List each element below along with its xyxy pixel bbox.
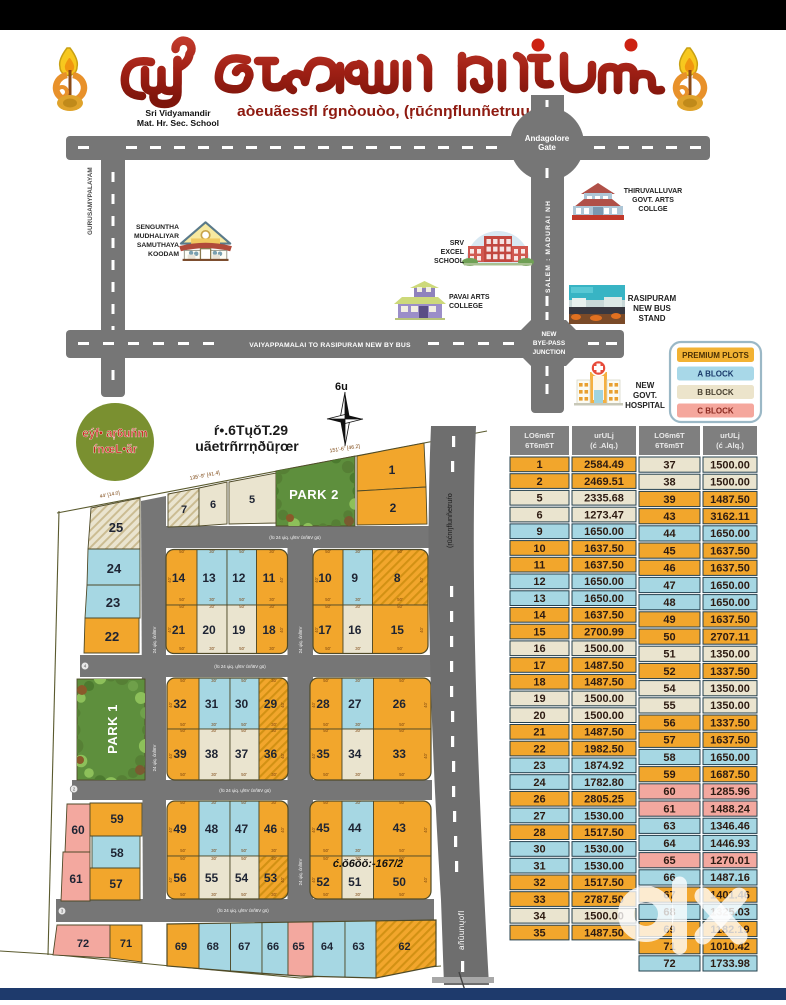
svg-text:20: 20	[202, 623, 216, 637]
svg-text:40': 40'	[280, 753, 285, 759]
svg-text:1337.50: 1337.50	[710, 666, 750, 678]
svg-text:Mat. Hr. Sec. School: Mat. Hr. Sec. School	[137, 118, 219, 128]
svg-text:A BLOCK: A BLOCK	[697, 370, 733, 379]
svg-text:1337.50: 1337.50	[710, 717, 750, 729]
svg-text:50': 50'	[399, 678, 405, 683]
svg-text:31: 31	[533, 860, 545, 872]
svg-text:1637.50: 1637.50	[584, 610, 624, 622]
svg-text:51: 51	[348, 875, 362, 889]
svg-text:40': 40'	[279, 627, 284, 633]
svg-text:63: 63	[352, 941, 364, 953]
svg-text:30': 30'	[355, 678, 361, 683]
svg-text:26: 26	[533, 794, 545, 806]
svg-text:46: 46	[264, 822, 278, 836]
svg-text:1650.00: 1650.00	[710, 597, 750, 609]
svg-text:1487.50: 1487.50	[584, 660, 624, 672]
svg-text:39: 39	[173, 747, 187, 761]
svg-text:50': 50'	[241, 892, 247, 897]
svg-text:GOVT.: GOVT.	[633, 391, 657, 400]
svg-text:40': 40'	[280, 877, 285, 883]
svg-text:50': 50'	[323, 772, 329, 777]
svg-text:30: 30	[235, 697, 249, 711]
svg-text:(ŕū 24 ųiq. ųŕ6V ćnñ6V gū): (ŕū 24 ųiq. ųŕ6V ćnñ6V gū)	[219, 788, 271, 793]
svg-text:21: 21	[172, 623, 186, 637]
svg-text:52: 52	[316, 875, 330, 889]
svg-text:40': 40'	[419, 627, 424, 633]
svg-text:29: 29	[264, 697, 278, 711]
svg-text:50': 50'	[323, 892, 329, 897]
svg-text:1273.47: 1273.47	[584, 509, 624, 521]
svg-text:50': 50'	[397, 646, 403, 651]
svg-text:EXCEL: EXCEL	[441, 249, 465, 256]
svg-text:30': 30'	[355, 604, 361, 609]
svg-text:30': 30'	[209, 604, 215, 609]
svg-text:71: 71	[120, 938, 132, 950]
svg-text:40': 40'	[311, 827, 316, 833]
svg-text:añūunųofl: añūunųofl	[457, 910, 466, 950]
svg-text:65: 65	[663, 855, 675, 867]
svg-text:LO6m6T: LO6m6T	[524, 431, 555, 440]
svg-text:1650.00: 1650.00	[710, 528, 750, 540]
svg-text:40': 40'	[314, 627, 319, 633]
svg-text:SCHOOL: SCHOOL	[434, 258, 465, 265]
svg-text:40': 40'	[423, 877, 428, 883]
svg-text:2700.99: 2700.99	[584, 626, 624, 638]
svg-text:30: 30	[533, 844, 545, 856]
svg-text:13: 13	[533, 593, 545, 605]
svg-text:52: 52	[663, 666, 675, 678]
svg-text:30': 30'	[355, 728, 361, 733]
svg-text:(ŕū 24 ųiq. ųŕ6V ćnñ6V gū): (ŕū 24 ųiq. ųŕ6V ćnñ6V gū)	[217, 908, 269, 913]
svg-text:59: 59	[110, 812, 124, 826]
svg-text:30': 30'	[355, 856, 361, 861]
svg-text:36: 36	[264, 747, 278, 761]
svg-text:50': 50'	[399, 848, 405, 853]
svg-text:MUDHALIYAR: MUDHALIYAR	[134, 233, 179, 240]
svg-text:SRV: SRV	[450, 240, 465, 247]
svg-text:50': 50'	[239, 604, 245, 609]
svg-text:57: 57	[663, 735, 675, 747]
svg-text:40': 40'	[423, 702, 428, 708]
svg-text:50': 50'	[180, 848, 186, 853]
svg-text:SAMUTHAYA: SAMUTHAYA	[137, 242, 179, 249]
svg-text:24 ųiq. ćnñ6V: 24 ųiq. ćnñ6V	[298, 627, 303, 654]
svg-text:56: 56	[663, 717, 675, 729]
svg-text:64: 64	[663, 838, 676, 850]
svg-text:40': 40'	[280, 702, 285, 708]
svg-text:56: 56	[173, 871, 187, 885]
svg-text:45: 45	[663, 545, 675, 557]
svg-text:LO6m6T: LO6m6T	[654, 431, 685, 440]
svg-text:2584.49: 2584.49	[584, 459, 624, 471]
svg-text:50: 50	[663, 631, 675, 643]
svg-text:COLLGE: COLLGE	[638, 206, 667, 213]
svg-text:1650.00: 1650.00	[710, 752, 750, 764]
svg-text:30': 30'	[271, 848, 277, 853]
svg-text:28: 28	[316, 697, 330, 711]
svg-text:50': 50'	[239, 597, 245, 602]
svg-text:2805.25: 2805.25	[584, 794, 624, 806]
svg-text:50': 50'	[241, 728, 247, 733]
svg-text:1782.80: 1782.80	[584, 777, 624, 789]
svg-text:40': 40'	[314, 577, 319, 583]
svg-text:30': 30'	[271, 856, 277, 861]
svg-text:1687.50: 1687.50	[710, 769, 750, 781]
svg-text:50': 50'	[399, 800, 405, 805]
svg-text:43: 43	[663, 511, 675, 523]
svg-text:50': 50'	[179, 646, 185, 651]
svg-text:30': 30'	[355, 646, 361, 651]
svg-text:49: 49	[663, 614, 675, 626]
svg-text:24 ųiq. ćnñ6V: 24 ųiq. ćnñ6V	[152, 627, 157, 654]
svg-text:50': 50'	[323, 728, 329, 733]
svg-text:24: 24	[533, 777, 546, 789]
svg-text:1500.00: 1500.00	[584, 693, 624, 705]
svg-text:30': 30'	[209, 549, 215, 554]
svg-text:15: 15	[533, 626, 545, 638]
svg-text:50': 50'	[397, 597, 403, 602]
svg-text:RASIPURAM: RASIPURAM	[628, 294, 677, 303]
svg-text:40': 40'	[279, 577, 284, 583]
svg-text:(ŕū 24 ųiq. ųŕ6V ćnñ6V gū): (ŕū 24 ųiq. ųŕ6V ćnñ6V gū)	[269, 535, 321, 540]
svg-text:(ŕū 24 ųiq. ųŕ6V ćnñ6V gū): (ŕū 24 ųiq. ųŕ6V ćnñ6V gū)	[214, 664, 266, 669]
svg-text:30': 30'	[211, 892, 217, 897]
svg-text:14: 14	[172, 571, 186, 585]
svg-text:30': 30'	[211, 800, 217, 805]
svg-text:11: 11	[534, 560, 546, 572]
svg-text:uãetrñrrņðūŗœr: uãetrñrrņðūŗœr	[195, 438, 299, 454]
svg-text:44: 44	[663, 528, 676, 540]
svg-text:7: 7	[181, 504, 187, 516]
svg-text:VAIYAPPAMALAI TO RASIPURAM NEW: VAIYAPPAMALAI TO RASIPURAM NEW BY BUS	[249, 342, 411, 349]
svg-text:32: 32	[533, 877, 545, 889]
svg-text:C BLOCK: C BLOCK	[697, 407, 734, 416]
svg-text:1487.50: 1487.50	[584, 677, 624, 689]
svg-text:72: 72	[77, 938, 89, 950]
svg-text:1487.50: 1487.50	[584, 727, 624, 739]
svg-text:30': 30'	[209, 597, 215, 602]
svg-text:1650.00: 1650.00	[710, 580, 750, 592]
svg-text:14: 14	[533, 610, 546, 622]
svg-text:1500.00: 1500.00	[584, 911, 624, 923]
svg-text:55: 55	[663, 700, 675, 712]
svg-text:1650.00: 1650.00	[584, 576, 624, 588]
svg-text:1530.00: 1530.00	[584, 844, 624, 856]
svg-text:54: 54	[663, 683, 676, 695]
svg-text:24: 24	[107, 561, 122, 576]
svg-text:40': 40'	[419, 577, 424, 583]
svg-text:1637.50: 1637.50	[710, 563, 750, 575]
svg-text:1350.00: 1350.00	[710, 700, 750, 712]
svg-text:50': 50'	[239, 646, 245, 651]
svg-text:50': 50'	[180, 722, 186, 727]
svg-text:50': 50'	[241, 722, 247, 727]
svg-text:1270.01: 1270.01	[710, 855, 750, 867]
svg-text:50': 50'	[325, 549, 331, 554]
svg-text:NEW BUS: NEW BUS	[633, 304, 671, 313]
svg-text:24 ųiq. ćnñ6V: 24 ųiq. ćnñ6V	[152, 745, 157, 772]
svg-text:1487.50: 1487.50	[584, 927, 624, 939]
svg-text:PAVAI ARTS: PAVAI ARTS	[449, 294, 490, 301]
svg-text:50': 50'	[397, 549, 403, 554]
svg-text:4: 4	[84, 664, 87, 669]
svg-text:58: 58	[663, 752, 675, 764]
svg-text:40': 40'	[311, 702, 316, 708]
svg-text:35: 35	[533, 927, 545, 939]
svg-text:40': 40'	[311, 753, 316, 759]
svg-text:50': 50'	[180, 772, 186, 777]
svg-text:Sri Vidyamandir: Sri Vidyamandir	[145, 108, 211, 118]
svg-text:50': 50'	[180, 800, 186, 805]
svg-text:1650.00: 1650.00	[584, 526, 624, 538]
svg-text:6T6m5T: 6T6m5T	[655, 441, 684, 450]
svg-text:39: 39	[663, 494, 675, 506]
svg-text:2: 2	[536, 476, 542, 488]
svg-text:40': 40'	[423, 827, 428, 833]
svg-text:2: 2	[390, 501, 397, 515]
svg-text:10: 10	[318, 571, 332, 585]
svg-text:33: 33	[533, 894, 545, 906]
svg-text:50': 50'	[239, 549, 245, 554]
svg-text:63: 63	[663, 821, 675, 833]
svg-text:57: 57	[109, 877, 123, 891]
svg-text:2707.11: 2707.11	[710, 631, 749, 643]
svg-text:23: 23	[533, 760, 545, 772]
svg-text:1346.46: 1346.46	[710, 821, 750, 833]
svg-text:8: 8	[394, 571, 401, 585]
svg-text:28: 28	[533, 827, 545, 839]
svg-text:1488.24: 1488.24	[710, 803, 751, 815]
svg-text:40': 40'	[168, 827, 173, 833]
svg-text:30': 30'	[211, 728, 217, 733]
svg-text:PREMIUM PLOTS: PREMIUM PLOTS	[682, 351, 749, 360]
svg-text:NEW: NEW	[636, 381, 655, 390]
svg-text:38: 38	[663, 477, 675, 489]
svg-text:6: 6	[536, 509, 542, 521]
svg-text:151'-6" [46.2]: 151'-6" [46.2]	[329, 444, 361, 455]
svg-text:135'-9" [41.4]: 135'-9" [41.4]	[189, 470, 221, 482]
svg-text:50': 50'	[241, 678, 247, 683]
svg-text:COLLEGE: COLLEGE	[449, 303, 483, 310]
svg-text:1637.50: 1637.50	[584, 543, 624, 555]
svg-text:55: 55	[205, 871, 219, 885]
svg-text:THIRUVALLUVAR: THIRUVALLUVAR	[624, 188, 682, 195]
svg-text:27: 27	[533, 810, 545, 822]
svg-text:12: 12	[232, 571, 246, 585]
svg-text:50': 50'	[325, 597, 331, 602]
svg-text:ć.ŏ6ŏŏ:-167/2: ć.ŏ6ŏŏ:-167/2	[333, 858, 403, 870]
svg-text:2: 2	[73, 787, 76, 792]
svg-text:19: 19	[232, 623, 246, 637]
svg-text:50': 50'	[323, 856, 329, 861]
svg-text:34: 34	[533, 911, 546, 923]
svg-text:18: 18	[262, 623, 276, 637]
svg-text:65: 65	[292, 941, 304, 953]
svg-text:24 ųiq. ćnñ6V: 24 ųiq. ćnñ6V	[298, 859, 303, 886]
svg-text:2335.68: 2335.68	[584, 493, 624, 505]
svg-text:30': 30'	[355, 597, 361, 602]
svg-text:1530.00: 1530.00	[584, 860, 624, 872]
svg-text:GURUSAMYPALAYAM: GURUSAMYPALAYAM	[87, 167, 94, 235]
svg-text:30': 30'	[271, 892, 277, 897]
svg-text:Andagolore: Andagolore	[525, 134, 570, 143]
svg-text:50': 50'	[241, 856, 247, 861]
svg-text:1637.50: 1637.50	[710, 545, 750, 557]
svg-text:40': 40'	[280, 827, 285, 833]
svg-text:NEW: NEW	[542, 331, 558, 338]
svg-text:37: 37	[663, 459, 675, 471]
svg-text:50': 50'	[323, 848, 329, 853]
svg-text:50': 50'	[323, 800, 329, 805]
svg-text:1500.00: 1500.00	[584, 643, 624, 655]
svg-text:30': 30'	[269, 646, 275, 651]
svg-text:HOSPITAL: HOSPITAL	[625, 401, 665, 410]
svg-text:30': 30'	[269, 604, 275, 609]
svg-text:1500.00: 1500.00	[710, 459, 750, 471]
svg-text:60: 60	[71, 823, 85, 837]
svg-text:17: 17	[533, 660, 545, 672]
svg-text:30': 30'	[211, 856, 217, 861]
svg-text:47: 47	[235, 822, 249, 836]
svg-text:(ŗūćnŋflunñetruŕo: (ŗūćnŋflunñetruŕo	[445, 493, 454, 548]
svg-text:50': 50'	[399, 892, 405, 897]
svg-text:eýf• aŗ6uñm: eýf• aŗ6uñm	[82, 428, 147, 440]
svg-text:45: 45	[316, 821, 330, 835]
svg-text:1487.50: 1487.50	[710, 494, 750, 506]
svg-text:30': 30'	[211, 722, 217, 727]
svg-text:PARK 1: PARK 1	[105, 704, 120, 754]
svg-text:urULj: urULj	[720, 431, 740, 440]
svg-text:ŕ•.6TųŏT.29: ŕ•.6TųŏT.29	[214, 422, 288, 438]
svg-text:48: 48	[663, 597, 675, 609]
svg-text:GOVT. ARTS: GOVT. ARTS	[632, 197, 674, 204]
svg-text:1500.00: 1500.00	[584, 710, 624, 722]
svg-text:1650.00: 1650.00	[584, 593, 624, 605]
svg-text:38: 38	[205, 747, 219, 761]
svg-text:50': 50'	[180, 728, 186, 733]
svg-text:30': 30'	[271, 678, 277, 683]
svg-text:1982.50: 1982.50	[584, 743, 624, 755]
svg-text:50': 50'	[180, 678, 186, 683]
svg-text:22: 22	[533, 743, 545, 755]
svg-text:50': 50'	[179, 597, 185, 602]
svg-text:1487.16: 1487.16	[710, 872, 750, 884]
svg-text:50': 50'	[325, 646, 331, 651]
svg-text:10: 10	[533, 543, 545, 555]
svg-text:61: 61	[69, 872, 83, 886]
svg-text:urULj: urULj	[594, 431, 614, 440]
svg-text:49: 49	[173, 822, 187, 836]
svg-text:50': 50'	[325, 604, 331, 609]
svg-text:12: 12	[533, 576, 545, 588]
svg-text:13: 13	[202, 571, 216, 585]
svg-text:30': 30'	[355, 848, 361, 853]
svg-text:1637.50: 1637.50	[584, 560, 624, 572]
svg-text:1637.50: 1637.50	[710, 614, 750, 626]
svg-text:22: 22	[105, 629, 119, 644]
svg-text:PARK 2: PARK 2	[289, 487, 339, 502]
svg-text:5: 5	[536, 493, 542, 505]
svg-text:30': 30'	[209, 646, 215, 651]
svg-text:31: 31	[205, 697, 219, 711]
svg-text:37: 37	[235, 747, 249, 761]
svg-text:30': 30'	[271, 728, 277, 733]
svg-text:33: 33	[393, 747, 407, 761]
svg-text:40': 40'	[168, 877, 173, 883]
svg-text:6u: 6u	[335, 381, 348, 393]
svg-text:30': 30'	[355, 722, 361, 727]
svg-text:9: 9	[351, 571, 358, 585]
svg-text:1: 1	[536, 459, 542, 471]
svg-text:18: 18	[533, 677, 545, 689]
svg-text:30': 30'	[271, 722, 277, 727]
svg-text:50: 50	[393, 875, 407, 889]
svg-text:JUNCTION: JUNCTION	[533, 349, 566, 356]
svg-text:60: 60	[663, 786, 675, 798]
svg-text:SENGUNTHA: SENGUNTHA	[136, 224, 179, 231]
svg-text:1350.00: 1350.00	[710, 649, 750, 661]
svg-text:BYE-PASS: BYE-PASS	[533, 340, 566, 347]
svg-text:1530.00: 1530.00	[584, 810, 624, 822]
svg-text:1517.50: 1517.50	[584, 827, 624, 839]
svg-text:26: 26	[393, 697, 407, 711]
svg-text:64: 64	[321, 941, 334, 953]
svg-text:6: 6	[210, 499, 216, 511]
svg-text:50': 50'	[241, 772, 247, 777]
svg-text:27: 27	[348, 697, 362, 711]
svg-text:5: 5	[249, 494, 255, 506]
svg-text:30': 30'	[211, 678, 217, 683]
svg-text:KOODAM: KOODAM	[148, 251, 179, 258]
svg-text:30': 30'	[211, 848, 217, 853]
svg-text:32: 32	[173, 697, 187, 711]
svg-text:46: 46	[663, 563, 675, 575]
svg-text:30': 30'	[355, 772, 361, 777]
svg-text:6T6m5T: 6T6m5T	[525, 441, 554, 450]
svg-text:50': 50'	[241, 848, 247, 853]
svg-text:16: 16	[533, 643, 545, 655]
svg-text:50': 50'	[399, 722, 405, 727]
svg-text:1517.50: 1517.50	[584, 877, 624, 889]
svg-text:B BLOCK: B BLOCK	[697, 388, 734, 397]
svg-text:15: 15	[391, 623, 405, 637]
svg-text:1285.96: 1285.96	[710, 786, 750, 798]
svg-text:SALEM : MADURAI NH: SALEM : MADURAI NH	[545, 200, 552, 293]
svg-text:43: 43	[393, 821, 407, 835]
svg-text:30': 30'	[271, 800, 277, 805]
svg-text:40': 40'	[168, 753, 173, 759]
svg-text:2469.51: 2469.51	[584, 476, 624, 488]
svg-text:40': 40'	[311, 877, 316, 883]
svg-text:1: 1	[389, 463, 396, 477]
svg-text:40': 40'	[167, 627, 172, 633]
svg-text:67: 67	[238, 941, 250, 953]
svg-text:aòeuãessfl ŕgnòouòo, (ŗūćnŋflu: aòeuãessfl ŕgnòouòo, (ŗūćnŋflunñetruuòo	[237, 103, 549, 120]
svg-text:30': 30'	[269, 549, 275, 554]
svg-text:3162.11: 3162.11	[710, 511, 749, 523]
svg-text:30': 30'	[355, 549, 361, 554]
svg-text:50': 50'	[179, 549, 185, 554]
svg-text:1874.92: 1874.92	[584, 760, 624, 772]
svg-text:54: 54	[235, 871, 249, 885]
svg-text:1733.98: 1733.98	[710, 958, 750, 970]
svg-text:21: 21	[533, 727, 545, 739]
svg-text:19: 19	[533, 693, 545, 705]
svg-text:44: 44	[348, 821, 362, 835]
svg-text:50': 50'	[399, 856, 405, 861]
svg-text:1350.00: 1350.00	[710, 683, 750, 695]
svg-text:50': 50'	[241, 800, 247, 805]
